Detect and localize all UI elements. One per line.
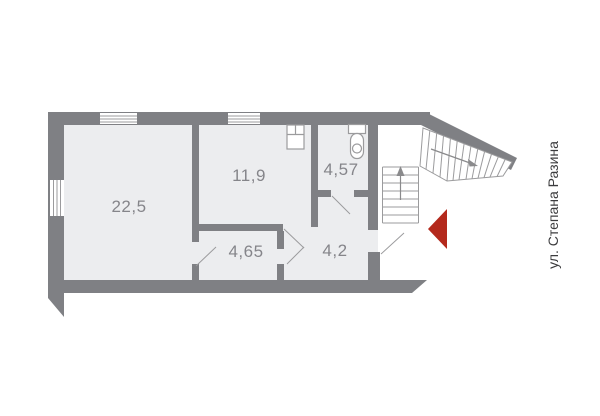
door-swing-entrance	[381, 233, 404, 254]
wall-bathroom-bottom-right	[354, 190, 368, 197]
wall-jamb-hallway-upper	[277, 231, 284, 249]
wall-bathroom-bottom-left	[311, 190, 331, 197]
toilet-icon	[349, 125, 366, 159]
wall-bottom	[64, 280, 427, 293]
entrance-arrow-icon	[428, 209, 447, 249]
floor-plan-drawing	[0, 0, 600, 416]
wall-jamb-hallway-lower	[277, 264, 284, 281]
floor-plan-page: 22,5 11,9 4,57 4,65 4,2 ул. Степана Рази…	[0, 0, 600, 416]
sink-icon	[287, 125, 304, 149]
street-name-label: ул. Степана Разина	[545, 141, 561, 269]
room-area-label-4-57: 4,57	[323, 160, 358, 180]
window-icon-top-2	[228, 113, 260, 124]
room-area-label-11-9: 11,9	[232, 166, 266, 186]
wall-room2-hallway	[192, 224, 283, 231]
room-area-label-22-5: 22,5	[111, 197, 146, 217]
wall-entrance-stub	[368, 252, 380, 281]
wall-right-interior	[368, 125, 378, 230]
window-icon-left	[50, 180, 64, 216]
window-icon-top-1	[100, 113, 137, 124]
wall-jamb-room1-door	[192, 264, 199, 281]
wall-room2-bathroom	[311, 125, 318, 227]
room-area-label-4-2: 4,2	[322, 241, 347, 261]
room-area-label-4-65: 4,65	[228, 242, 263, 262]
